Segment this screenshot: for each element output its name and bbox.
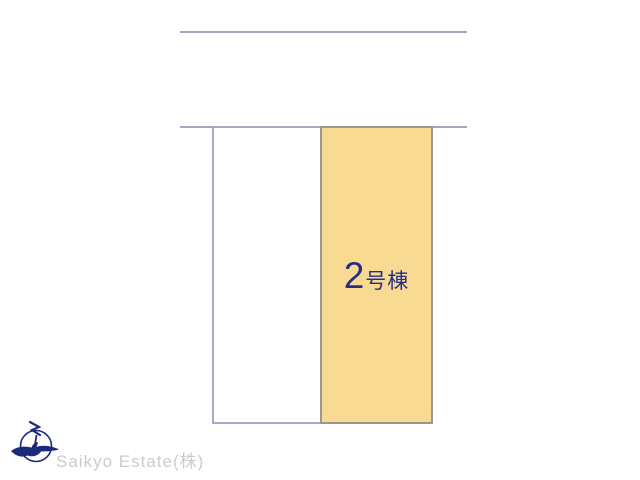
plot-2-label: 2号棟 [344, 257, 410, 294]
plot-parcel-2: 2号棟 [320, 126, 433, 424]
company-name: Saikyo Estate(株) [56, 447, 204, 472]
site-plan-canvas: 2号棟 Saikyo Estate(株) [0, 0, 640, 480]
swallow-bird-icon [10, 418, 60, 466]
company-logo [10, 418, 60, 466]
plot-2-label-suffix: 号棟 [365, 271, 409, 292]
plot-parcel-1 [212, 126, 322, 424]
plot-2-label-number: 2 [344, 257, 366, 294]
boundary-line-top [180, 31, 467, 33]
